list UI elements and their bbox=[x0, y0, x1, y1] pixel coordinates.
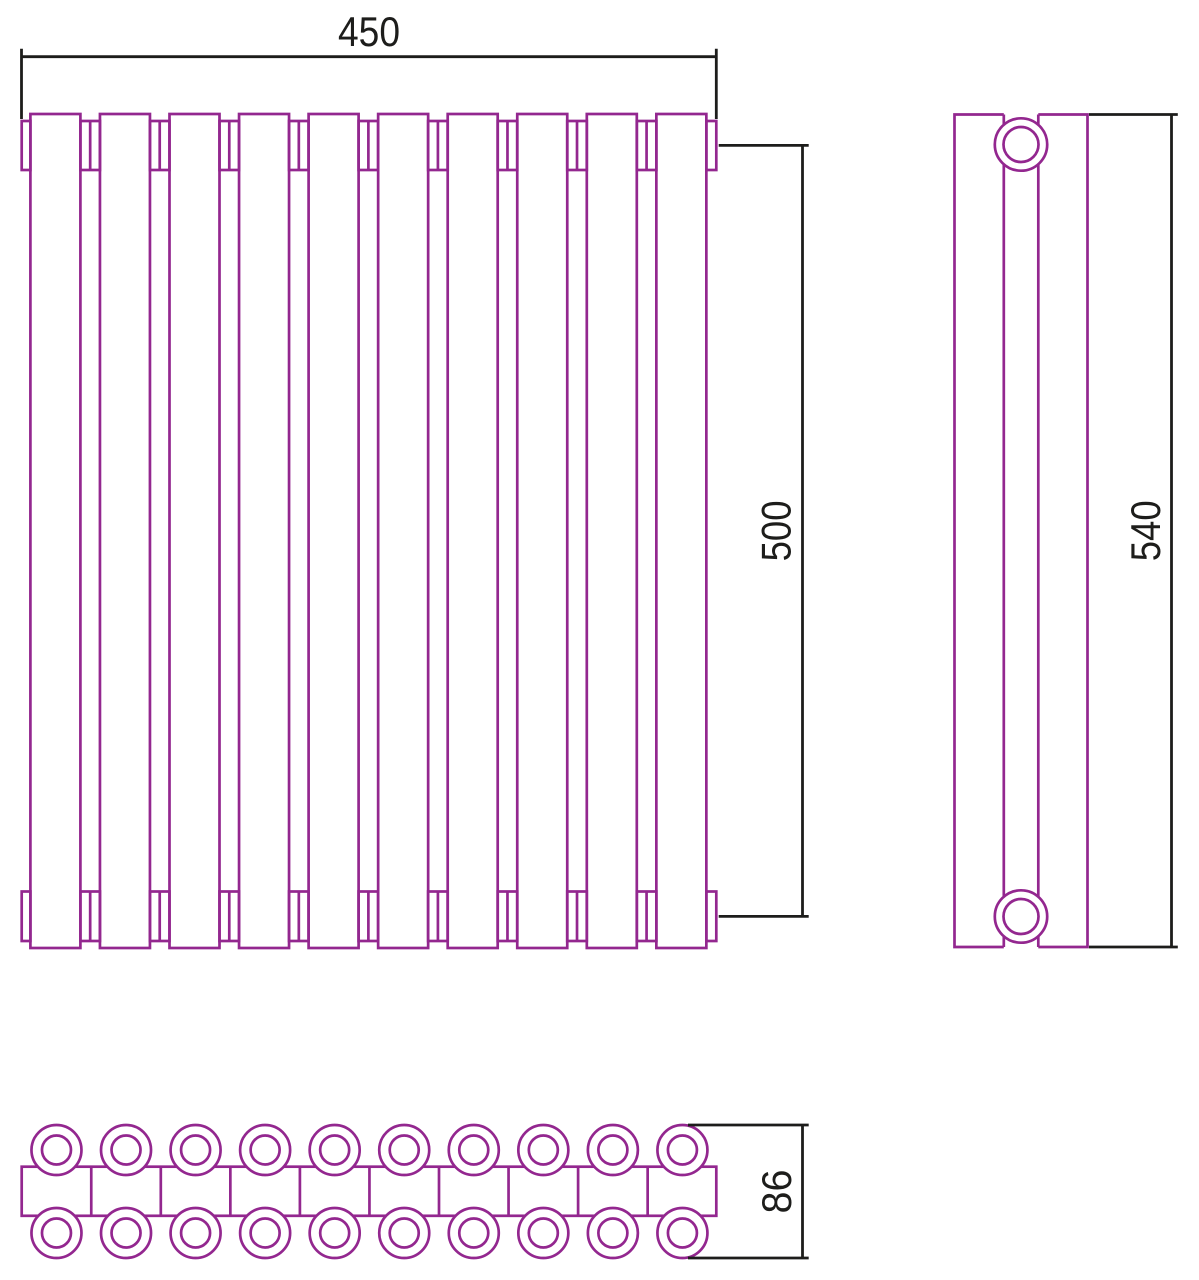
svg-text:500: 500 bbox=[753, 500, 800, 561]
svg-text:450: 450 bbox=[338, 8, 400, 55]
svg-text:86: 86 bbox=[753, 1170, 800, 1214]
svg-text:540: 540 bbox=[1122, 500, 1169, 561]
